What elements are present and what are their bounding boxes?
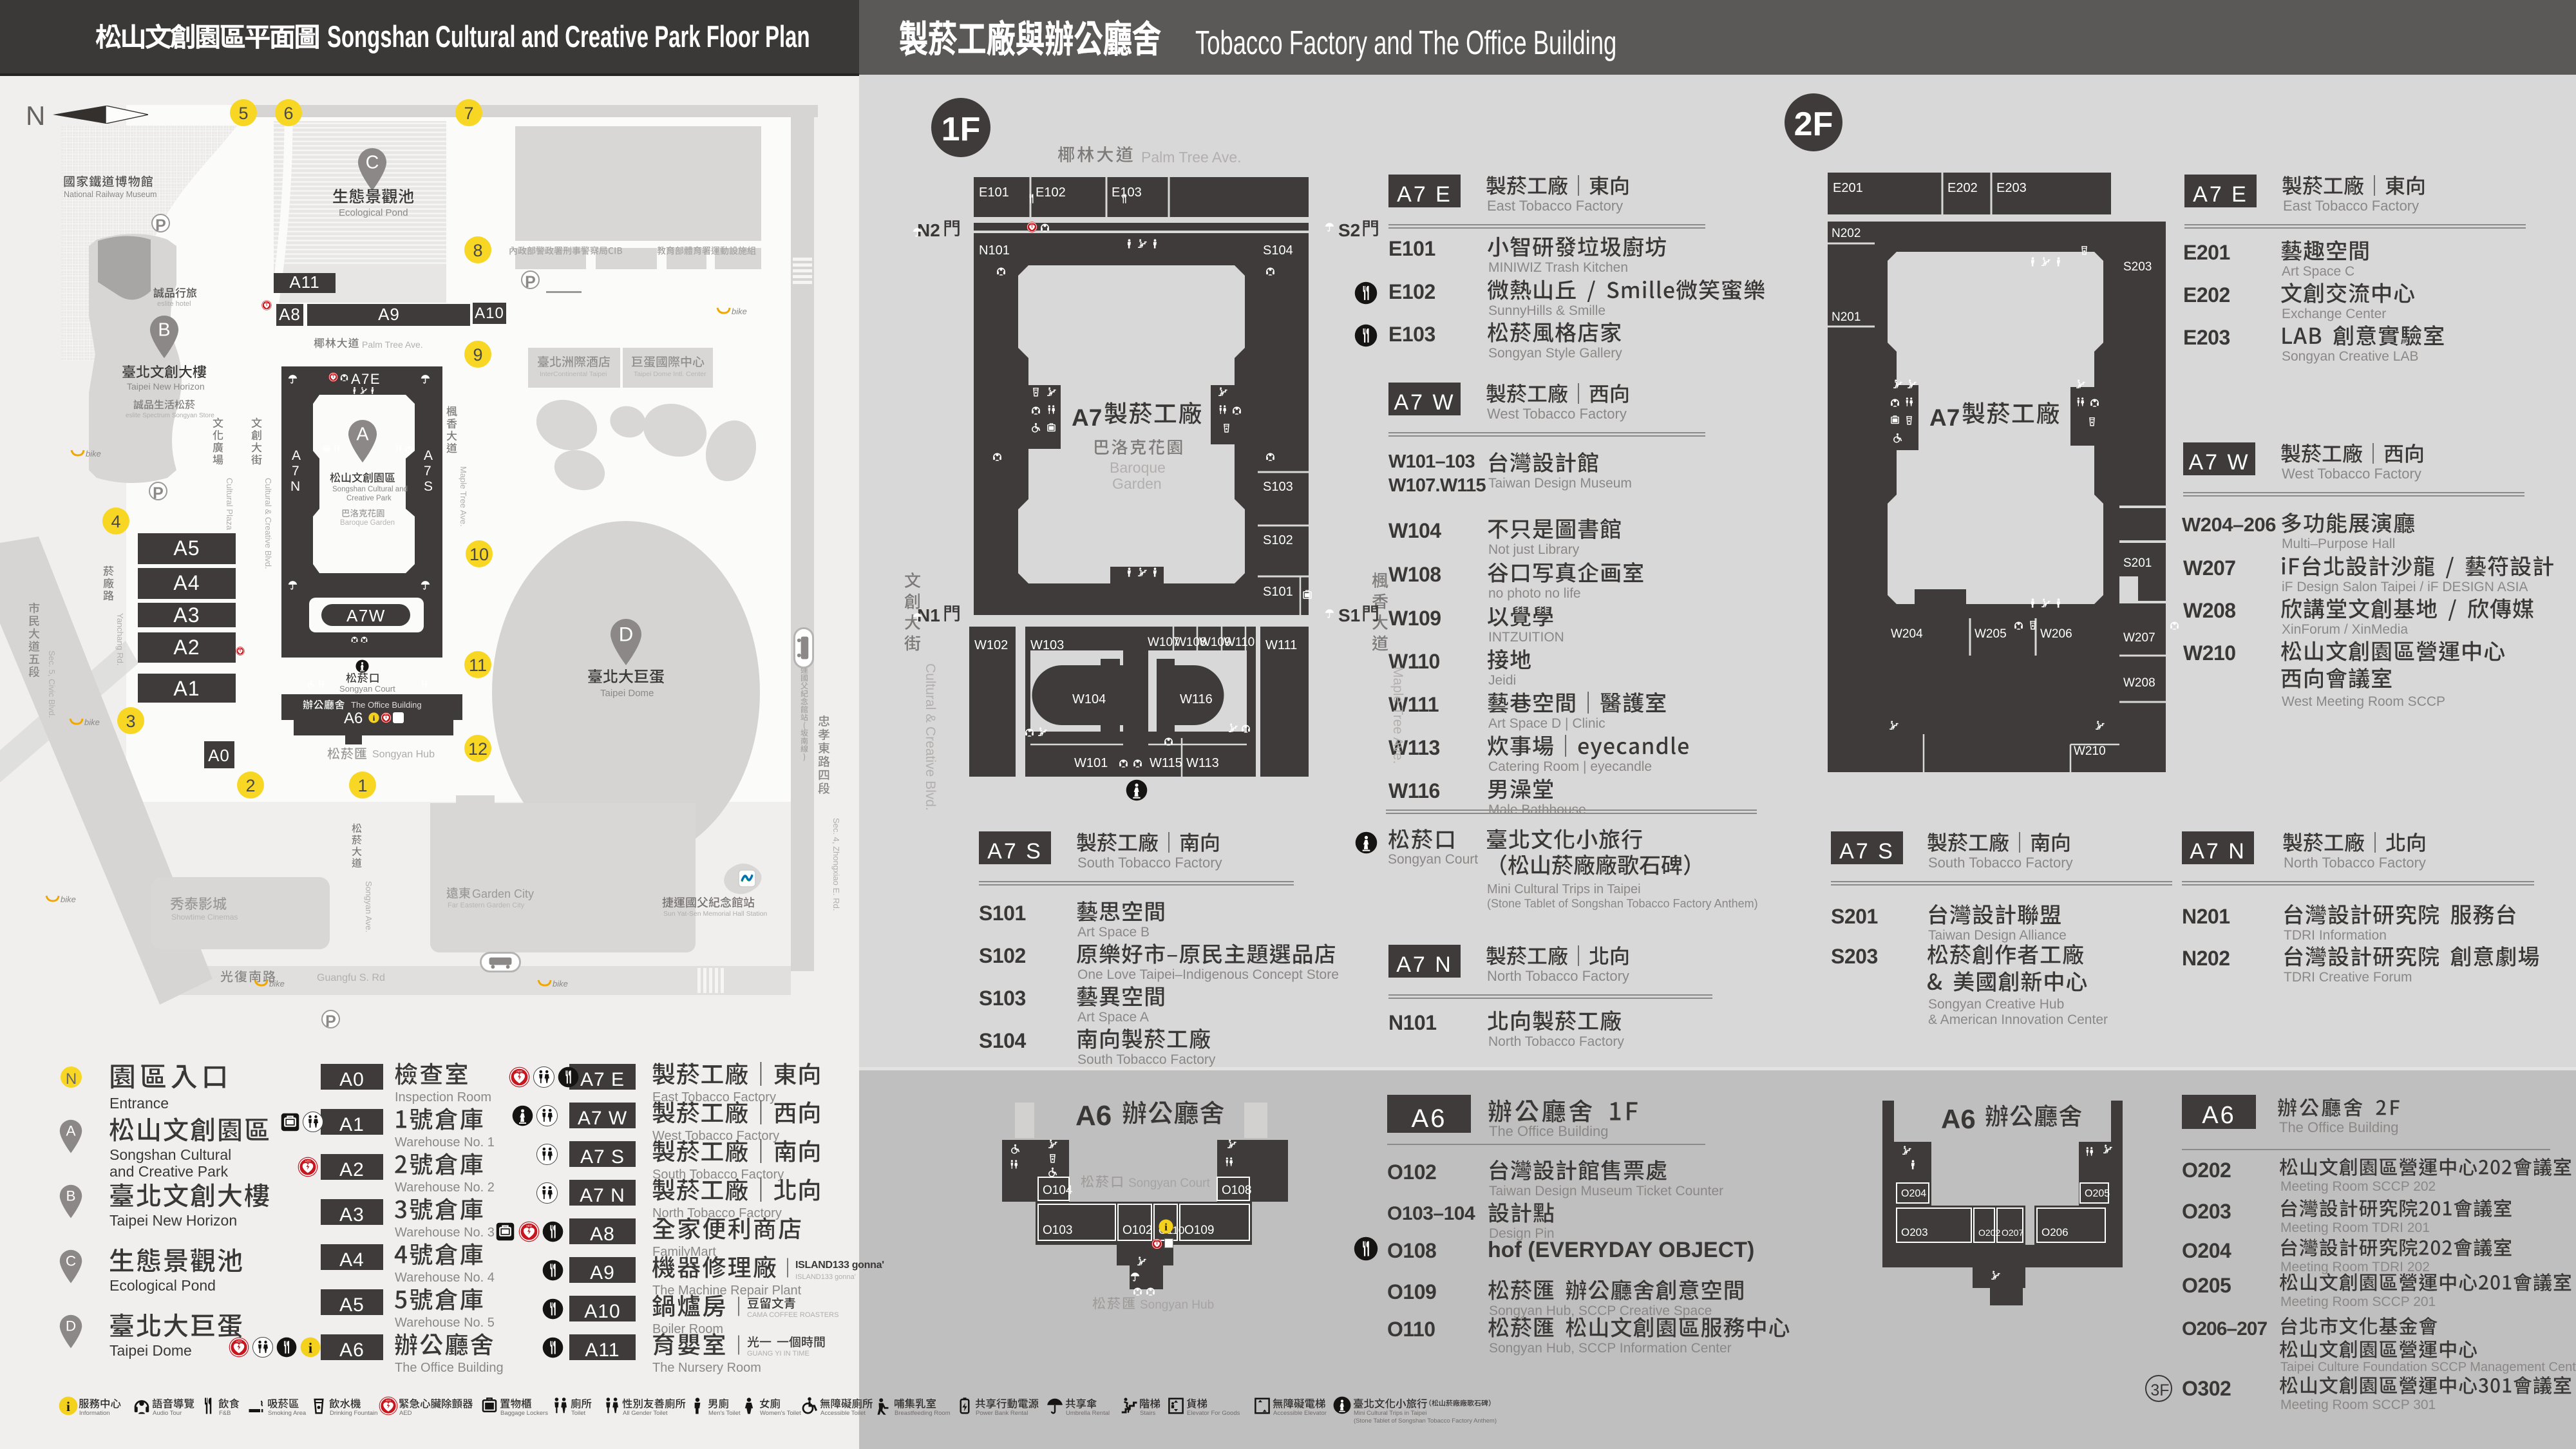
svg-text:W205: W205 (1975, 627, 2007, 641)
svg-text:bike: bike (86, 449, 101, 459)
svg-text:A11: A11 (289, 272, 319, 292)
svg-text:B: B (66, 1188, 75, 1204)
svg-text:O206: O206 (2041, 1226, 2069, 1238)
svg-text:A8: A8 (279, 305, 301, 324)
svg-text:bike: bike (732, 307, 747, 316)
svg-text:S103: S103 (1263, 480, 1293, 494)
svg-text:W111: W111 (1265, 638, 1297, 652)
svg-text:C: C (66, 1253, 76, 1269)
svg-text:AED: AED (1155, 1240, 1159, 1242)
svg-text:i: i (308, 1340, 312, 1356)
svg-text:A: A (66, 1123, 75, 1139)
svg-text:W207: W207 (2123, 631, 2155, 645)
svg-text:O205: O205 (2085, 1188, 2110, 1199)
svg-text:AED: AED (1030, 223, 1034, 225)
svg-text:E202: E202 (1947, 181, 1978, 195)
svg-text:A5: A5 (173, 536, 200, 560)
svg-text:N202: N202 (1832, 227, 1861, 240)
svg-text:bike: bike (61, 895, 76, 904)
svg-text:AED: AED (516, 1070, 522, 1073)
svg-text:O103: O103 (1043, 1224, 1072, 1237)
svg-text:O109: O109 (1184, 1224, 1214, 1237)
svg-text:E201: E201 (1833, 181, 1863, 195)
svg-text:O108: O108 (1222, 1184, 1251, 1197)
svg-text:W104: W104 (1072, 692, 1106, 706)
svg-text:W103: W103 (1030, 638, 1064, 652)
svg-text:S104: S104 (1263, 243, 1293, 258)
svg-text:W208: W208 (2123, 676, 2155, 690)
svg-text:W102: W102 (974, 638, 1008, 652)
svg-text:S203: S203 (2123, 260, 2152, 274)
svg-text:bike: bike (553, 979, 568, 989)
svg-text:i: i (1164, 1221, 1168, 1233)
svg-text:W204: W204 (1891, 627, 1923, 641)
svg-text:N201: N201 (1832, 310, 1861, 324)
svg-text:W115: W115 (1150, 756, 1182, 770)
svg-text:AED: AED (386, 1399, 391, 1402)
svg-text:A9: A9 (378, 305, 400, 324)
svg-text:A0: A0 (208, 746, 230, 765)
svg-text:A4: A4 (173, 571, 200, 594)
svg-text:i: i (66, 1399, 70, 1414)
svg-text:O204: O204 (1901, 1188, 1926, 1199)
svg-text:AED: AED (332, 374, 335, 375)
svg-text:A: A (356, 424, 369, 445)
svg-text:O102: O102 (1122, 1224, 1152, 1237)
svg-text:A1: A1 (173, 677, 200, 700)
svg-text:W110: W110 (1224, 636, 1255, 649)
svg-text:W210: W210 (2074, 744, 2106, 758)
svg-text:O203: O203 (1901, 1226, 1928, 1238)
svg-text:W206: W206 (2040, 627, 2072, 641)
svg-text:C: C (366, 153, 379, 173)
svg-text:AED: AED (305, 1160, 311, 1163)
svg-text:A10: A10 (475, 305, 504, 322)
svg-text:A3: A3 (173, 603, 200, 627)
svg-text:O207: O207 (2002, 1227, 2023, 1238)
svg-text:W113: W113 (1186, 756, 1219, 770)
svg-text:bike: bike (84, 717, 100, 727)
svg-text:E101: E101 (979, 185, 1009, 200)
svg-text:O104: O104 (1043, 1184, 1073, 1197)
svg-text:B: B (158, 320, 170, 341)
svg-text:AED: AED (239, 648, 241, 650)
svg-text:N101: N101 (979, 243, 1010, 258)
svg-text:E102: E102 (1036, 185, 1066, 200)
svg-text:D: D (619, 623, 634, 645)
svg-text:bike: bike (269, 979, 285, 989)
svg-text:AED: AED (236, 1340, 242, 1343)
svg-text:D: D (66, 1318, 76, 1334)
svg-text:A2: A2 (173, 636, 200, 659)
svg-text:AED: AED (526, 1224, 532, 1227)
svg-text:AED: AED (384, 714, 388, 716)
svg-text:AED: AED (265, 301, 269, 303)
svg-text:S101: S101 (1263, 585, 1293, 599)
svg-text:S201: S201 (2123, 556, 2152, 570)
svg-text:W116: W116 (1180, 692, 1213, 706)
svg-text:S102: S102 (1263, 533, 1293, 547)
svg-text:W101: W101 (1074, 756, 1108, 770)
svg-text:E203: E203 (1996, 181, 2027, 195)
